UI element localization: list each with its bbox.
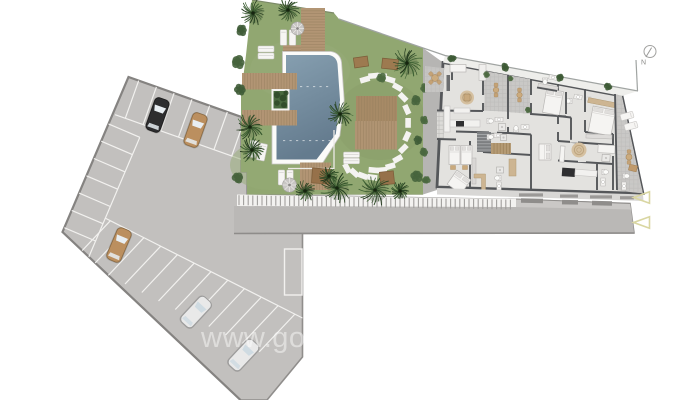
svg-text:www.go: www.go — [200, 322, 306, 354]
svg-text:N: N — [641, 60, 646, 67]
